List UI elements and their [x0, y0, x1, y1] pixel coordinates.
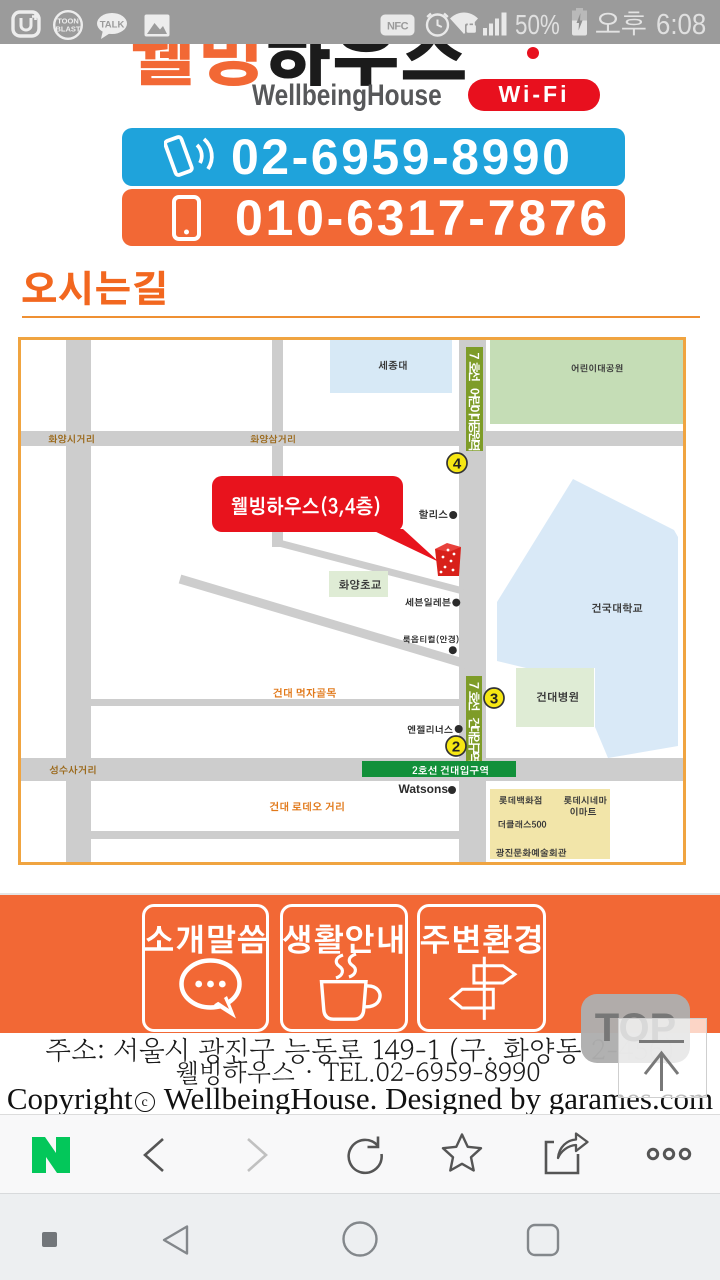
- svg-text:BLAST: BLAST: [56, 25, 81, 34]
- svg-text:2: 2: [452, 739, 460, 756]
- svg-text:3: 3: [490, 691, 498, 708]
- svg-text:4: 4: [453, 456, 462, 473]
- svg-text:TALK: TALK: [100, 20, 125, 31]
- svg-text:Watsons: Watsons: [398, 782, 448, 796]
- svg-text:NFC: NFC: [387, 21, 409, 33]
